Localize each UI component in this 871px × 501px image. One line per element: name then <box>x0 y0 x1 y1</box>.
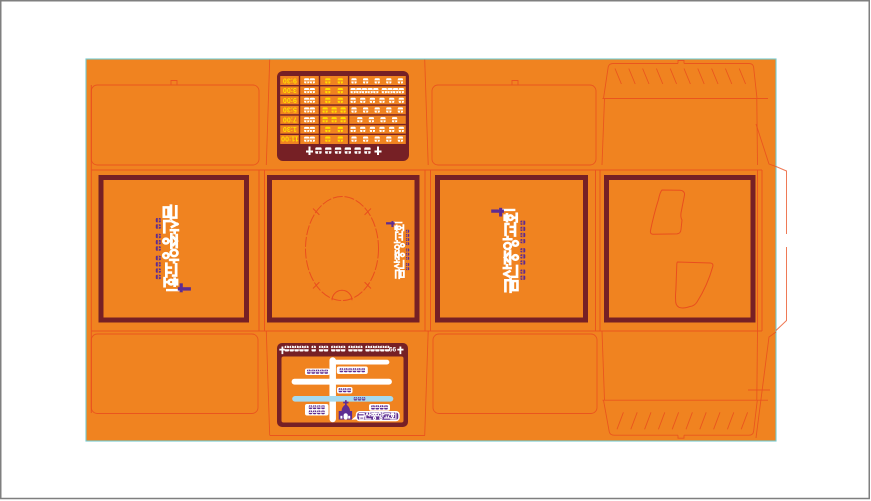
svg-text:1:30: 1:30 <box>283 125 297 132</box>
svg-text:66: 66 <box>389 347 397 354</box>
svg-text:11:00: 11:00 <box>281 135 299 142</box>
svg-text:3:00: 3:00 <box>283 86 297 93</box>
svg-text:5:30: 5:30 <box>283 106 297 113</box>
svg-text:9:00: 9:00 <box>283 96 297 103</box>
svg-text:7:00: 7:00 <box>283 115 297 122</box>
svg-text:9:30: 9:30 <box>283 77 297 84</box>
